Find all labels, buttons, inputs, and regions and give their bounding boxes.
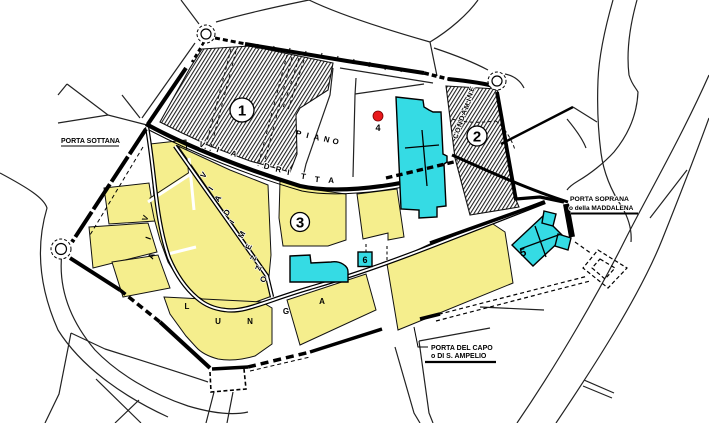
svg-text:PORTA SOPRANA: PORTA SOPRANA [570, 196, 629, 203]
svg-text:N: N [247, 317, 253, 326]
svg-text:6: 6 [362, 255, 367, 265]
svg-text:o della MADDALENA: o della MADDALENA [569, 205, 634, 212]
svg-text:4: 4 [375, 123, 380, 133]
svg-text:3: 3 [296, 215, 304, 232]
svg-text:PORTA SOTTANA: PORTA SOTTANA [61, 138, 120, 145]
svg-text:U: U [215, 317, 221, 326]
svg-text:A: A [328, 176, 335, 185]
svg-text:L: L [185, 302, 190, 311]
svg-text:o DI S. AMPELIO: o DI S. AMPELIO [431, 353, 487, 360]
svg-text:PORTA DEL CAPO: PORTA DEL CAPO [431, 345, 493, 352]
svg-text:G: G [283, 307, 289, 316]
svg-text:1: 1 [238, 103, 246, 120]
svg-text:2: 2 [473, 129, 481, 146]
svg-text:A: A [319, 297, 325, 306]
